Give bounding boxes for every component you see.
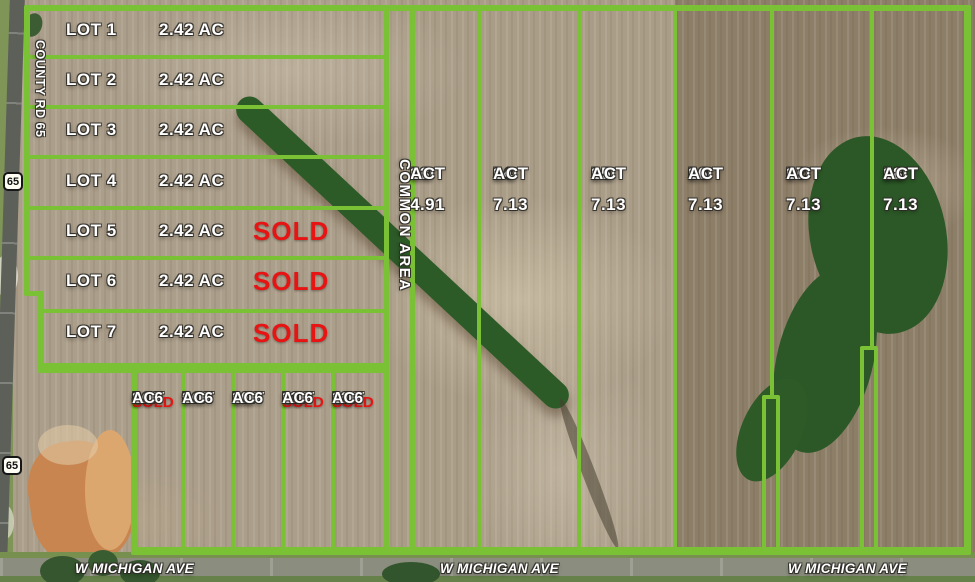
lot-7-name: LOT 7: [66, 322, 117, 342]
common-area-label: COMMON AREA: [383, 150, 413, 300]
lot-4-acreage: 2.42 AC: [159, 171, 224, 191]
lot-3-name: LOT 3: [66, 120, 117, 140]
boundary-top: [24, 5, 971, 11]
lot-divider-17-18: [870, 5, 874, 350]
michigan-ave-label-center: W MICHIGAN AVE: [440, 561, 559, 576]
lot-divider-5-6: [26, 256, 386, 260]
lot-6-sold-badge: SOLD: [253, 266, 329, 297]
lot-divider-14-15: [577, 5, 581, 551]
lot-7-acreage: 2.42 AC: [159, 322, 224, 342]
lot-divider-1-2: [26, 55, 386, 59]
route-65-shield-north: 65: [3, 172, 23, 191]
lot-2-name: LOT 2: [66, 70, 117, 90]
lot-17-access-strip: [762, 395, 780, 551]
route-65-shield-south: 65: [2, 456, 22, 475]
lot-5-sold-badge: SOLD: [253, 216, 329, 247]
lot-1-name: LOT 1: [66, 20, 117, 40]
lot-divider-6-7: [40, 309, 386, 313]
lot-6-name: LOT 6: [66, 271, 117, 291]
lot-18-access-strip: [860, 346, 878, 551]
boundary-east: [964, 5, 971, 554]
lot-7-south-boundary: [38, 363, 389, 373]
lot-7-sold-badge: SOLD: [253, 318, 329, 349]
county-rd-65-label: COUNTY RD 65: [17, 36, 47, 141]
lot-divider-13-14: [477, 5, 481, 551]
plat-map: LOT 1 2.42 AC LOT 2 2.42 AC LOT 3 2.42 A…: [0, 0, 975, 582]
michigan-ave-label-east: W MICHIGAN AVE: [788, 561, 907, 576]
lot-divider-15-16: [673, 5, 677, 551]
lot-2-acreage: 2.42 AC: [159, 70, 224, 90]
sand-patch: [38, 425, 98, 465]
boundary-south: [131, 547, 971, 555]
lot-5-name: LOT 5: [66, 221, 117, 241]
lot-1-acreage: 2.42 AC: [159, 20, 224, 40]
lot-4-name: LOT 4: [66, 171, 117, 191]
boundary-west-lower: [38, 291, 44, 373]
lot-divider-3-4: [26, 155, 386, 159]
lot-3-acreage: 2.42 AC: [159, 120, 224, 140]
tree-south-4: [382, 562, 440, 582]
lot-5-acreage: 2.42 AC: [159, 221, 224, 241]
lot-divider-16-17: [770, 5, 774, 399]
michigan-ave-label-west: W MICHIGAN AVE: [75, 561, 194, 576]
lot-divider-4-5: [26, 206, 386, 210]
lot-divider-2-3: [26, 105, 386, 109]
lot-6-acreage: 2.42 AC: [159, 271, 224, 291]
